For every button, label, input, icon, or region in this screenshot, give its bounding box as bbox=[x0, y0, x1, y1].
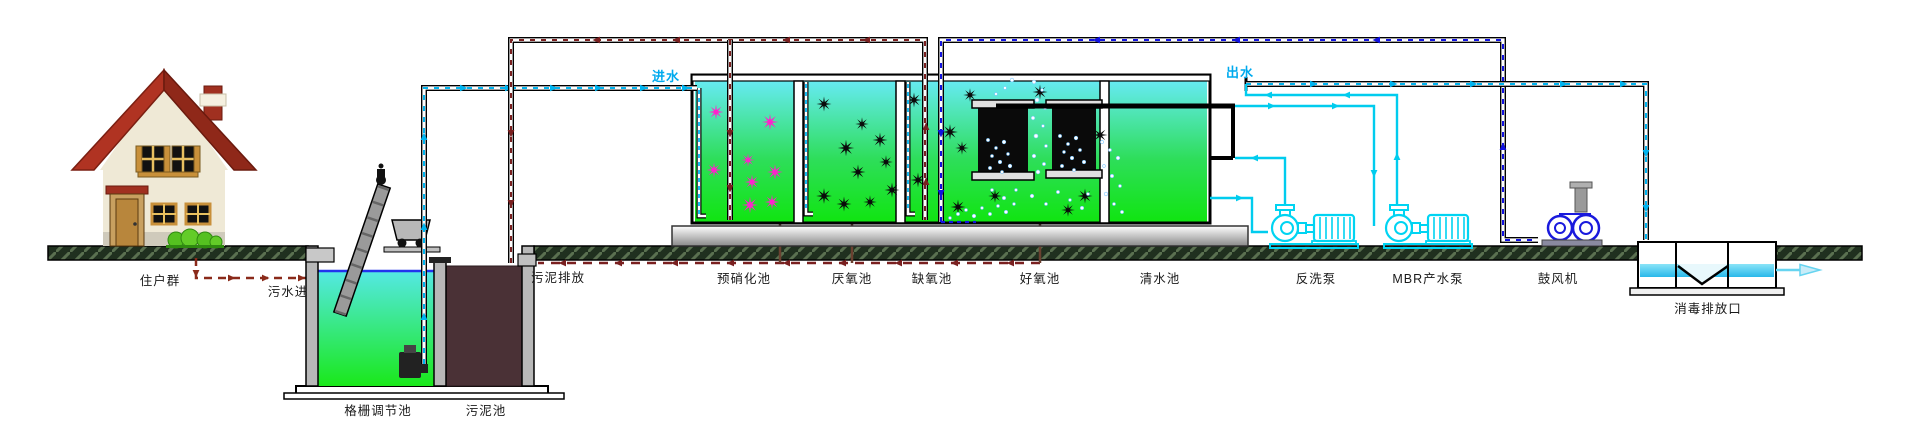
label-sludge-discharge: 污泥排放 bbox=[531, 267, 585, 286]
sludge-inlet-stub bbox=[518, 254, 536, 266]
label-effluent: 出水 bbox=[1226, 62, 1254, 81]
partition-wall-1 bbox=[794, 81, 803, 223]
label-mbr-product-pump: MBR产水泵 bbox=[1392, 268, 1463, 287]
screenings-cart bbox=[384, 220, 440, 252]
label-anaerobic-tank: 厌氧池 bbox=[832, 268, 873, 287]
pump-piping bbox=[1210, 84, 1397, 232]
process-flow-diagram: 住户群 污水进 格栅调节池 污泥池 污泥排放 进水 预硝化池 厌氧池 缺氧池 好… bbox=[0, 0, 1920, 442]
sewage-inlet-pipe bbox=[193, 258, 308, 281]
label-pre-nitrification-tank: 预硝化池 bbox=[717, 268, 771, 287]
front-door bbox=[106, 186, 148, 246]
label-backwash-pump: 反洗泵 bbox=[1296, 268, 1337, 287]
label-anoxic-tank: 缺氧池 bbox=[912, 268, 953, 287]
mbr-product-pump-unit bbox=[1384, 205, 1472, 248]
backwash-pump-unit bbox=[1270, 205, 1358, 248]
sludge-tank-fill bbox=[446, 266, 522, 386]
upper-windows bbox=[136, 146, 200, 177]
label-disinfection-outlet: 消毒排放口 bbox=[1674, 298, 1742, 317]
label-residents: 住户群 bbox=[140, 270, 181, 289]
label-clear-water-tank: 清水池 bbox=[1140, 268, 1181, 287]
inlet-weir bbox=[306, 248, 334, 262]
label-blower: 鼓风机 bbox=[1538, 268, 1579, 287]
bioreactor-base-slab bbox=[672, 226, 1248, 246]
house-illustration bbox=[72, 70, 256, 248]
label-influent: 进水 bbox=[652, 66, 680, 85]
pump-piping-arrows bbox=[1236, 92, 1400, 202]
final-outflow-arrow bbox=[1776, 265, 1820, 276]
partition-wall-2 bbox=[896, 81, 905, 223]
diagram-graphics bbox=[0, 0, 1920, 442]
label-sludge-tank: 污泥池 bbox=[466, 400, 507, 419]
label-aerobic-tank: 好氧池 bbox=[1020, 268, 1061, 287]
label-screen-tank: 格栅调节池 bbox=[344, 400, 412, 419]
bioreactor bbox=[672, 75, 1248, 246]
blower-unit bbox=[1542, 182, 1602, 246]
label-sewage-in: 污水进 bbox=[268, 281, 309, 300]
